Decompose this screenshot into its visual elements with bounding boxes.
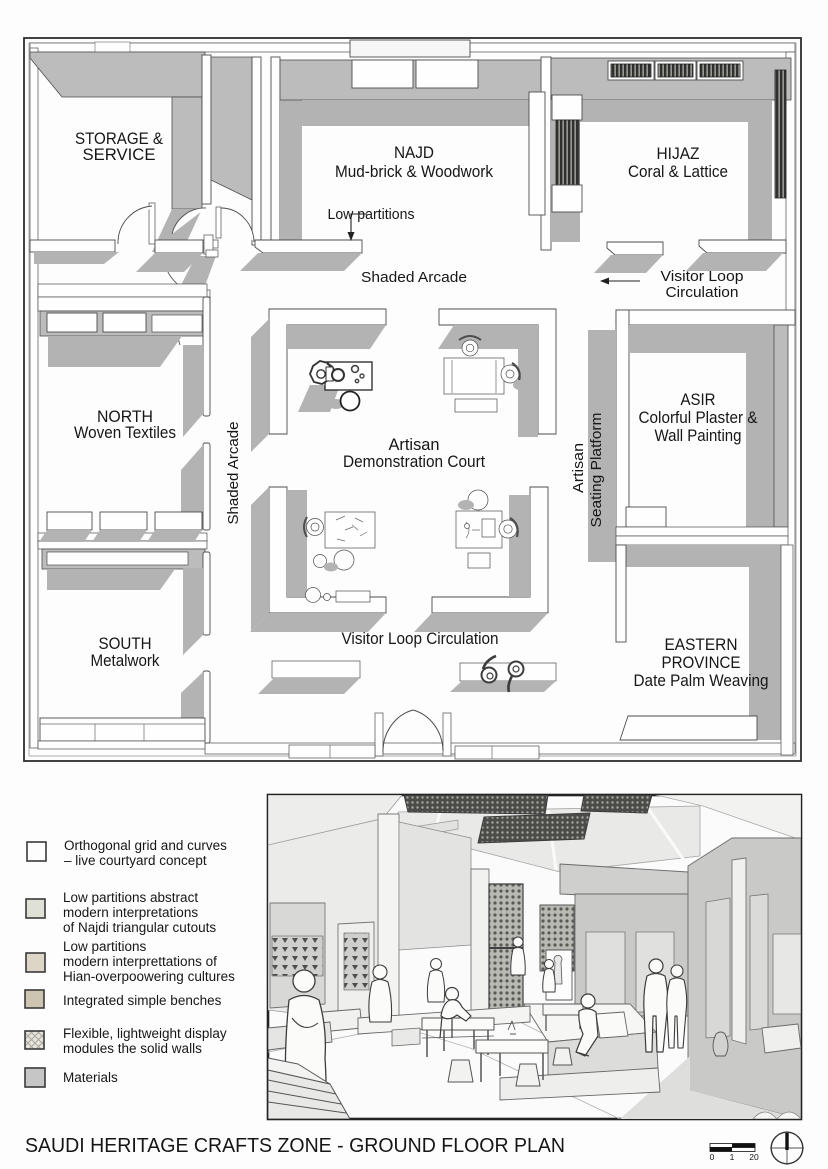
svg-text:EASTERN: EASTERN	[665, 636, 738, 654]
svg-text:modern interprettations of: modern interprettations of	[63, 954, 217, 969]
svg-text:Woven Textiles: Woven Textiles	[74, 424, 176, 442]
svg-text:Wall Painting: Wall Painting	[655, 427, 742, 445]
svg-text:Visitor Loop: Visitor Loop	[661, 268, 744, 285]
svg-text:modules the solid walls: modules the solid walls	[63, 1041, 202, 1056]
svg-text:Low partitions: Low partitions	[328, 206, 415, 223]
svg-text:of Najdi triangular cutouts: of Najdi triangular cutouts	[63, 920, 216, 935]
svg-text:Circulation: Circulation	[666, 284, 739, 301]
svg-text:Seating Platform: Seating Platform	[588, 413, 605, 528]
svg-text:Visitor Loop Circulation: Visitor Loop Circulation	[342, 630, 499, 648]
svg-text:SERVICE: SERVICE	[83, 146, 156, 164]
svg-text:Date Palm Weaving: Date Palm Weaving	[634, 672, 769, 690]
svg-text:Demonstration Court: Demonstration Court	[343, 453, 485, 471]
svg-text:Shaded Arcade: Shaded Arcade	[225, 422, 242, 525]
svg-text:Artisan: Artisan	[570, 443, 587, 493]
svg-text:Hian-overpoowering cultures: Hian-overpoowering cultures	[63, 969, 235, 984]
svg-text:Coral & Lattice: Coral & Lattice	[628, 163, 728, 181]
svg-text:Shaded Arcade: Shaded Arcade	[361, 269, 467, 286]
svg-text:SAUDI HERITAGE CRAFTS ZONE - G: SAUDI HERITAGE CRAFTS ZONE - GROUND FLOO…	[25, 1134, 565, 1157]
svg-text:Orthogonal grid and curves: Orthogonal grid and curves	[64, 838, 227, 853]
svg-text:Metalwork: Metalwork	[91, 652, 161, 670]
svg-text:Low partitions abstract: Low partitions abstract	[63, 890, 198, 905]
svg-text:ASIR: ASIR	[681, 391, 716, 409]
svg-text:modern interpretations: modern interpretations	[63, 905, 198, 920]
svg-text:Flexible, lightweight display: Flexible, lightweight display	[63, 1026, 227, 1041]
svg-text:PROVINCE: PROVINCE	[662, 654, 741, 672]
svg-text:NAJD: NAJD	[394, 144, 434, 162]
svg-text:SOUTH: SOUTH	[99, 635, 152, 653]
svg-text:Artisan: Artisan	[389, 436, 440, 454]
svg-text:Colorful Plaster &: Colorful Plaster &	[639, 409, 758, 427]
svg-text:Materials: Materials	[63, 1070, 118, 1085]
svg-text:1: 1	[730, 1152, 735, 1162]
svg-text:Integrated simple benches: Integrated simple benches	[63, 993, 222, 1008]
svg-text:HIJAZ: HIJAZ	[657, 145, 700, 163]
svg-text:20: 20	[749, 1152, 759, 1162]
svg-text:Low partitions: Low partitions	[63, 939, 147, 954]
svg-text:Mud-brick & Woodwork: Mud-brick & Woodwork	[335, 163, 494, 181]
svg-text:0: 0	[710, 1152, 715, 1162]
svg-text:– live courtyard concept: – live courtyard concept	[64, 853, 207, 868]
